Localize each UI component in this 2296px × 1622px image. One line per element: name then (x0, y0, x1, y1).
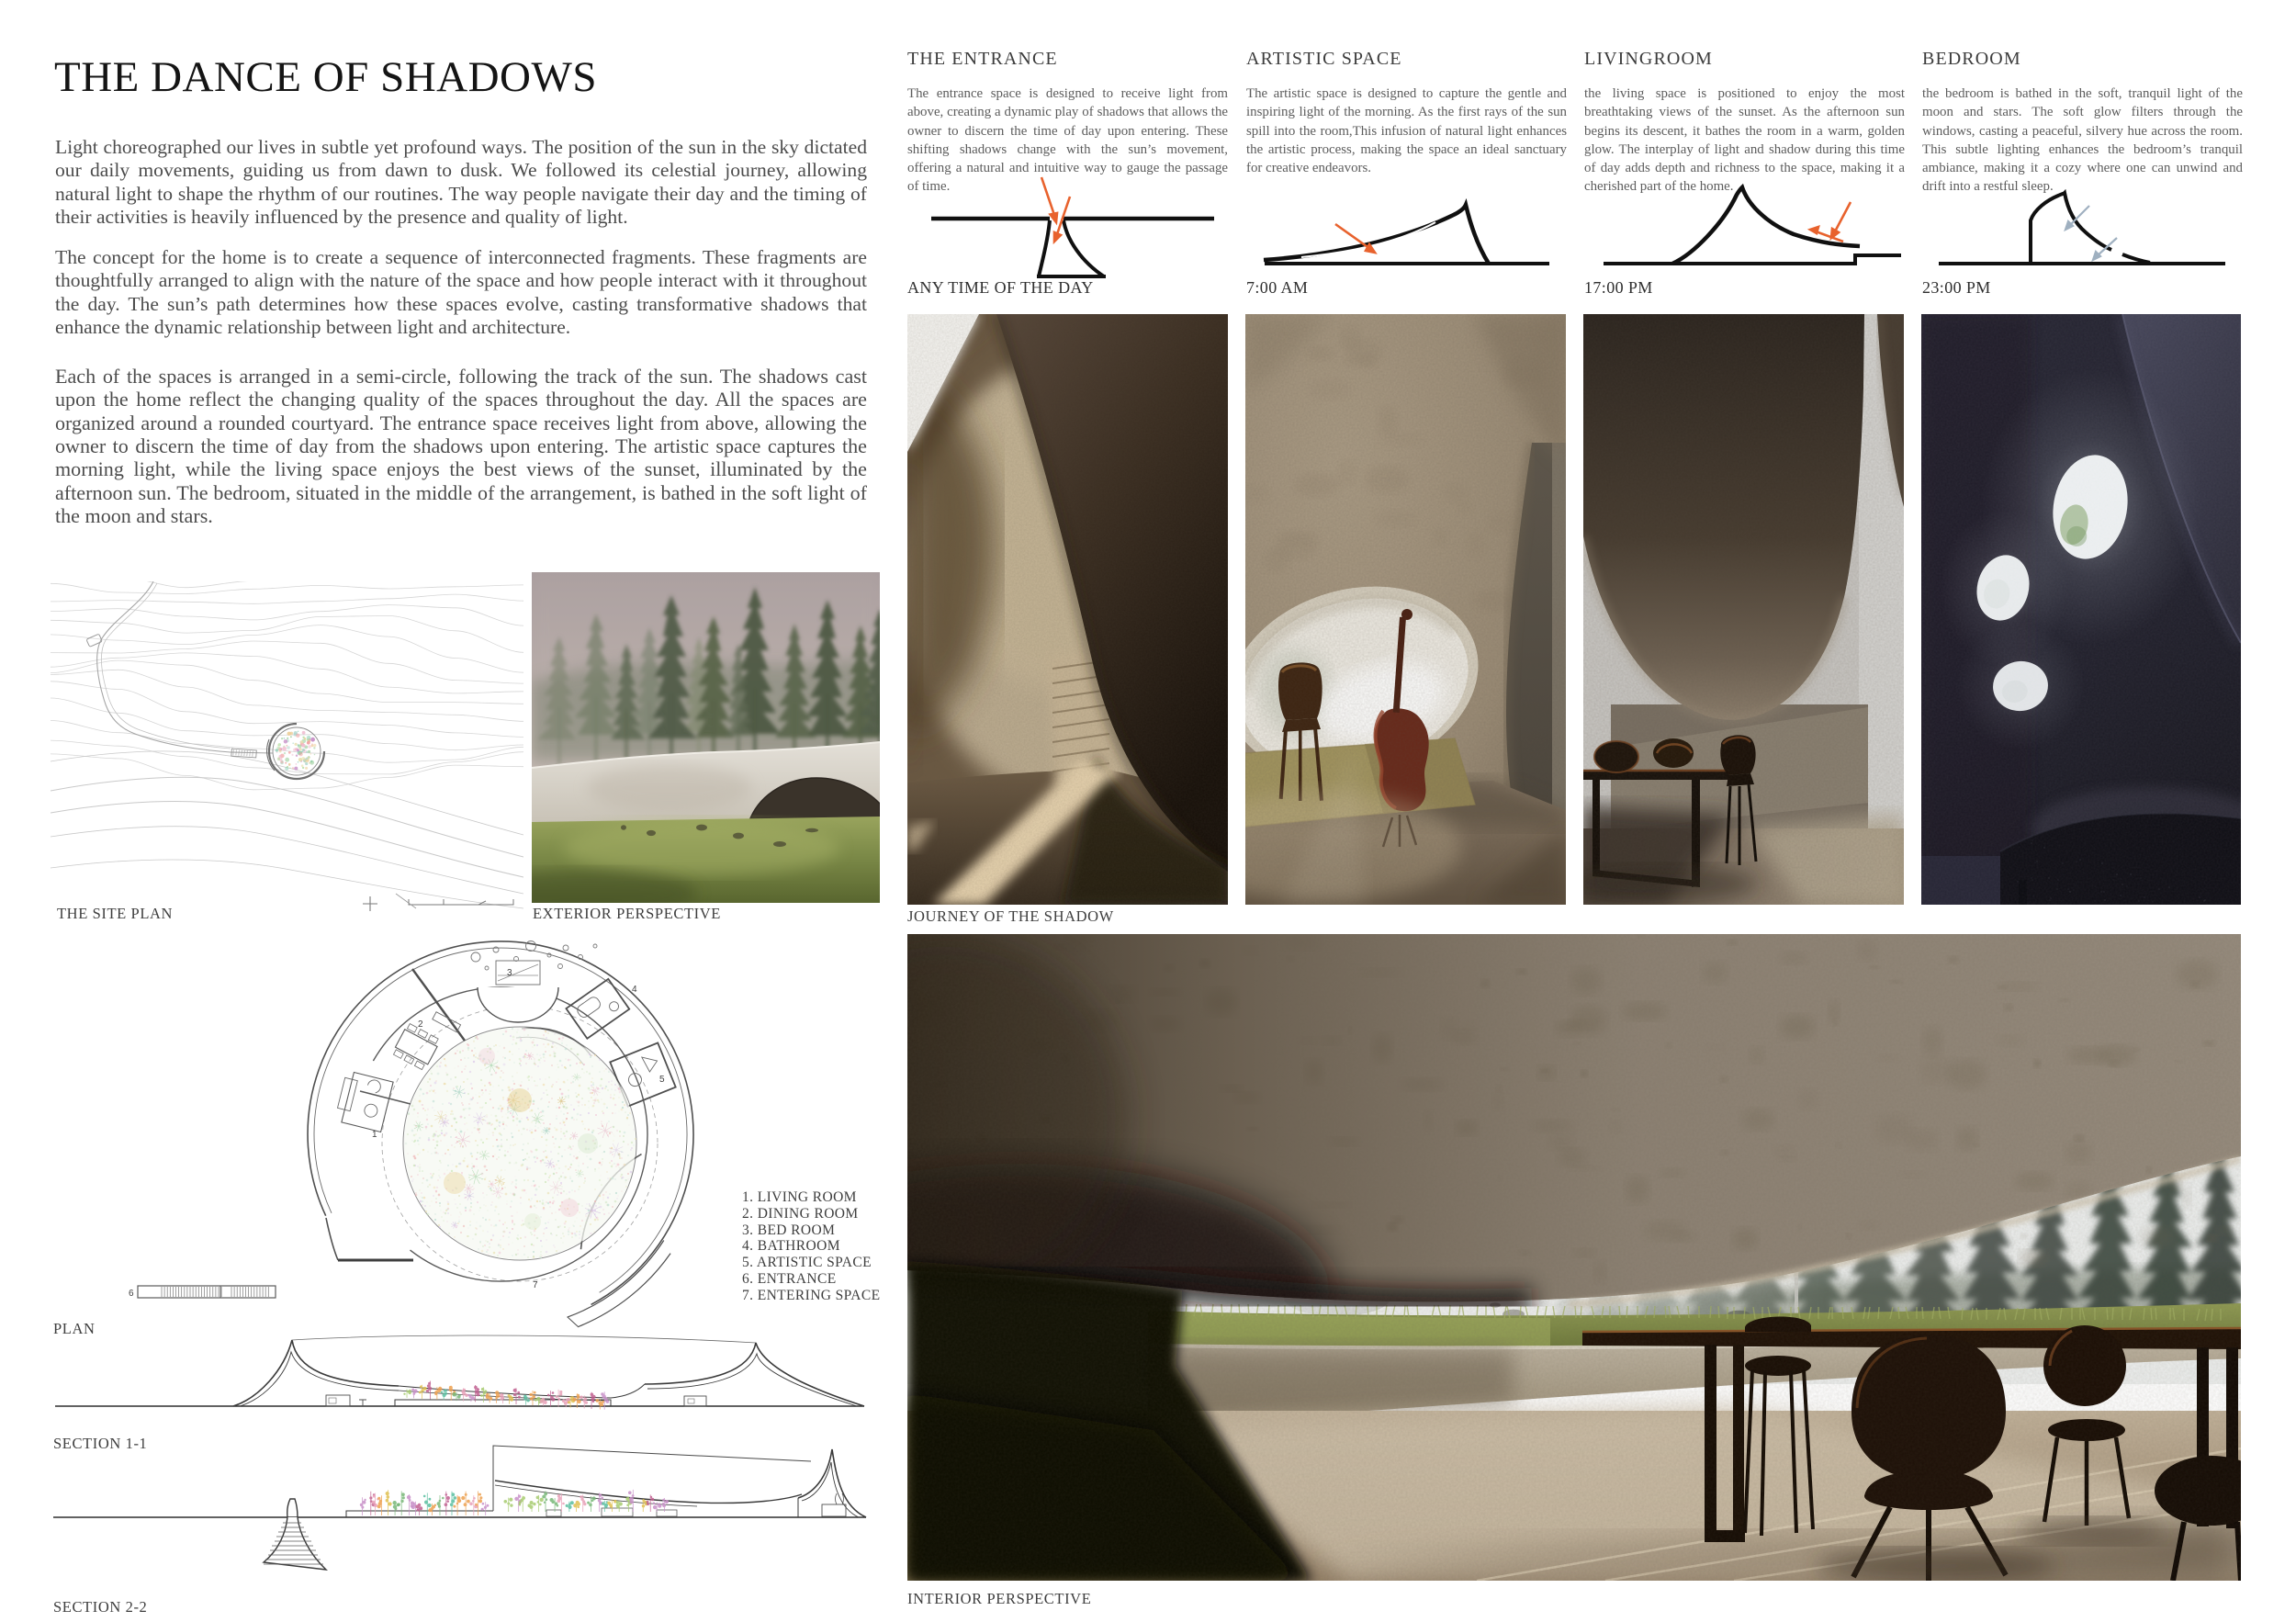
svg-text:2: 2 (418, 1019, 423, 1030)
svg-text:7: 7 (533, 1280, 538, 1290)
svg-text:4: 4 (632, 985, 637, 995)
svg-text:1: 1 (372, 1130, 377, 1140)
svg-text:3: 3 (507, 968, 512, 978)
svg-text:6: 6 (129, 1289, 134, 1299)
svg-text:5: 5 (659, 1075, 665, 1085)
